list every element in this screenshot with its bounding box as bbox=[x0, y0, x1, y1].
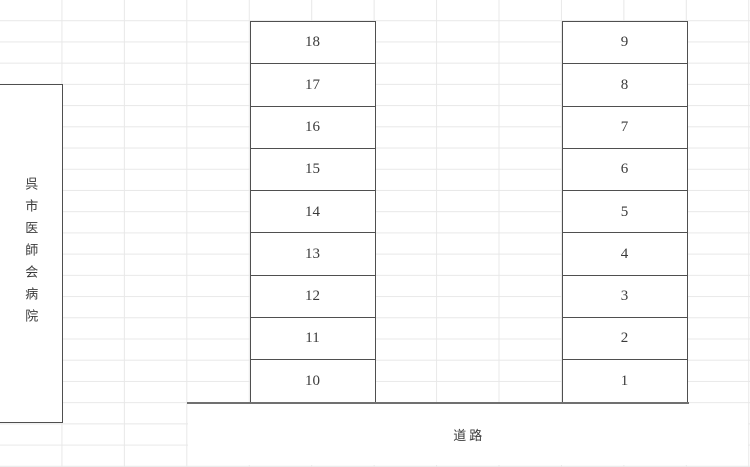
road-area[interactable]: 道路 bbox=[188, 404, 749, 466]
left-number-column: 18 17 16 15 14 13 12 11 10 bbox=[250, 21, 376, 403]
cell-8[interactable]: 8 bbox=[562, 63, 688, 107]
cell-6[interactable]: 6 bbox=[562, 148, 688, 192]
cell-12[interactable]: 12 bbox=[250, 275, 376, 319]
road-label: 道路 bbox=[450, 425, 485, 444]
spreadsheet-parking-map: 呉市医師会病院 18 17 16 15 14 13 12 11 10 9 8 7… bbox=[0, 0, 750, 467]
cell-9[interactable]: 9 bbox=[562, 21, 688, 65]
cell-5[interactable]: 5 bbox=[562, 190, 688, 234]
cell-2[interactable]: 2 bbox=[562, 317, 688, 361]
cell-7[interactable]: 7 bbox=[562, 106, 688, 150]
cell-13[interactable]: 13 bbox=[250, 232, 376, 276]
cell-4[interactable]: 4 bbox=[562, 232, 688, 276]
cell-3[interactable]: 3 bbox=[562, 275, 688, 319]
cell-14[interactable]: 14 bbox=[250, 190, 376, 234]
cell-17[interactable]: 17 bbox=[250, 63, 376, 107]
cell-16[interactable]: 16 bbox=[250, 106, 376, 150]
cell-15[interactable]: 15 bbox=[250, 148, 376, 192]
hospital-label: 呉市医師会病院 bbox=[23, 177, 36, 331]
cell-11[interactable]: 11 bbox=[250, 317, 376, 361]
road-top-border bbox=[187, 402, 689, 404]
right-number-column: 9 8 7 6 5 4 3 2 1 bbox=[562, 21, 688, 403]
cell-18[interactable]: 18 bbox=[250, 21, 376, 65]
hospital-cell[interactable]: 呉市医師会病院 bbox=[0, 84, 63, 423]
cell-10[interactable]: 10 bbox=[250, 359, 376, 403]
cell-1[interactable]: 1 bbox=[562, 359, 688, 403]
